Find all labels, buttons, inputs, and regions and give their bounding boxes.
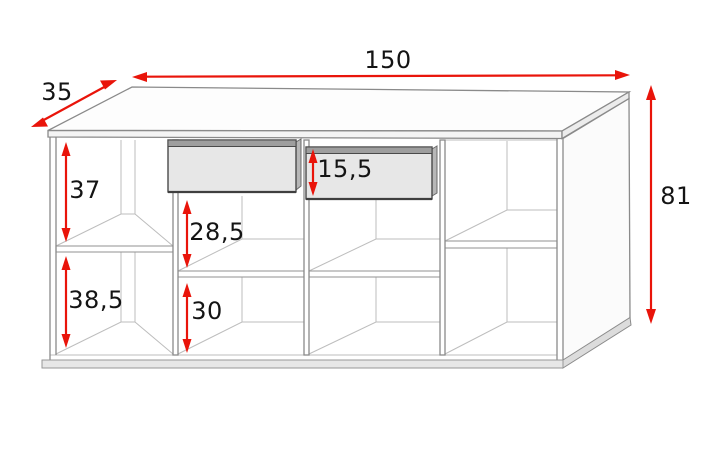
left-panel: [50, 137, 56, 360]
dim-label-width: 150: [364, 48, 411, 72]
shelf-middle-right: [309, 271, 440, 277]
dim-label-upper-left: 37: [69, 178, 101, 202]
dim-label-height: 81: [660, 184, 692, 208]
right-drawer-top-edge: [306, 147, 432, 154]
shelf-middle-left: [178, 271, 304, 277]
dim-arrow-height: [646, 85, 656, 324]
left-drawer-front: [168, 140, 296, 192]
left-drawer-side: [296, 139, 301, 190]
dim-label-depth: 35: [41, 80, 73, 104]
top-surface: [48, 87, 629, 131]
shelf-right: [445, 241, 557, 248]
carcass: [42, 87, 631, 368]
line-art: [0, 0, 720, 458]
top-front-edge: [48, 131, 562, 139]
dim-label-lower-left: 38,5: [68, 288, 123, 312]
base-front: [42, 360, 563, 368]
dim-label-drawer-front: 15,5: [317, 157, 372, 181]
shelf-left: [56, 246, 173, 252]
dimension-diagram: 150 35 81 37 38,5 28,5 30 15,5: [0, 0, 720, 458]
drawers: [168, 139, 437, 199]
dim-label-middle-upper: 28,5: [189, 220, 244, 244]
dim-label-middle-lower: 30: [191, 299, 223, 323]
divider-3: [440, 140, 445, 355]
right-drawer-side: [432, 146, 437, 196]
dim-arrow-middle-lower: [183, 283, 192, 353]
left-drawer-top-edge: [168, 140, 296, 147]
